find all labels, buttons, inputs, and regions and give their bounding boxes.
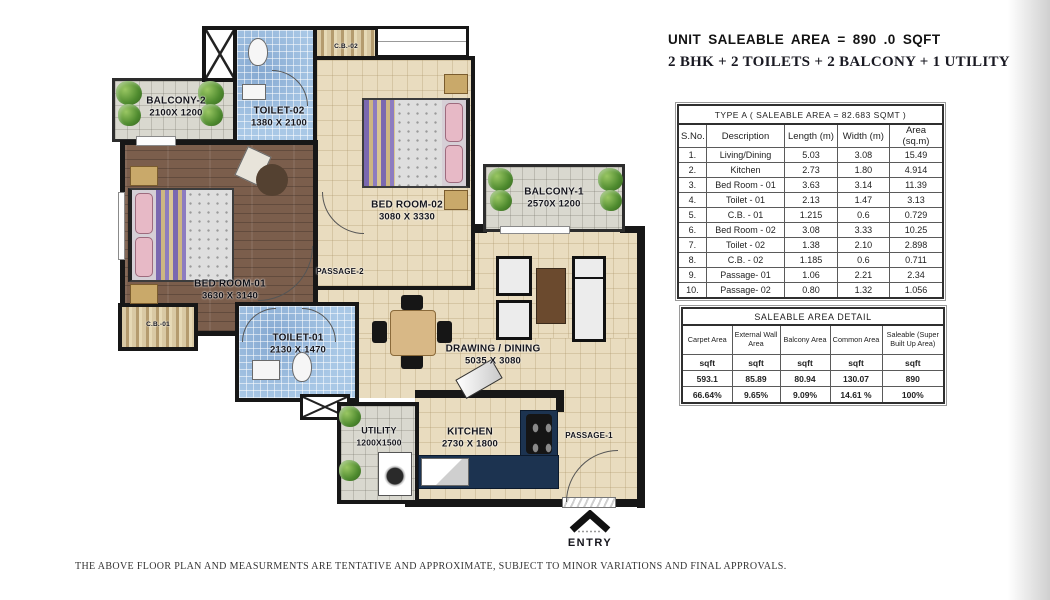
table-cell: 10. [678,283,706,299]
table-row: 66.64%9.65%9.09%14.61 %100% [682,387,944,404]
table-cell: 9.09% [780,387,830,404]
table-cell: 1.056 [890,283,943,299]
dining-table [390,310,436,356]
balcony-rail-gap [500,226,570,234]
table-cell: 2.34 [890,268,943,283]
table-cell: 80.94 [780,371,830,387]
window-line [378,41,466,42]
wall-segment [556,390,564,412]
table-cell: 3.33 [837,223,889,238]
table-cell: sqft [682,355,732,371]
table-cell: 5.03 [785,148,837,163]
table-title: TYPE A ( SALEABLE AREA = 82.683 SQMT ) [678,105,943,124]
column-header: External Wall Area [732,325,780,355]
plant-icon [118,104,141,126]
table-cell: Passage- 01 [706,268,785,283]
table-cell: 9.65% [732,387,780,404]
table-row: 4.Toilet - 012.131.473.13 [678,193,943,208]
table-cell: 66.64% [682,387,732,404]
table-cell: 2.21 [837,268,889,283]
table-cell: 4. [678,193,706,208]
table-cell: 10.25 [890,223,943,238]
room-label-drawing-dining: DRAWING / DINING5035 X 3080 [446,342,541,367]
table-cell: 2.898 [890,238,943,253]
room-label-toilet-02: TOILET-021380 X 2100 [251,104,307,129]
table-cell: 3.63 [785,178,837,193]
bed-sheet [186,190,232,280]
plant-icon [488,168,513,191]
table-cell: 8. [678,253,706,268]
washing-machine [378,452,412,496]
table-cell: 100% [882,387,944,404]
table-row: 10.Passage- 020.801.321.056 [678,283,943,299]
room-label-balcony-2: BALCONY-22100X 1200 [146,94,206,119]
armchair [496,300,532,340]
table-cell: 3.13 [890,193,943,208]
table-cell: 11.39 [890,178,943,193]
table-row: 5.C.B. - 011.2150.60.729 [678,208,943,223]
entry-arrow-icon [568,510,612,534]
x-brace-icon [206,30,234,78]
wall-segment [415,390,560,398]
room-label-balcony-1: BALCONY-12570X 1200 [524,185,584,210]
floorplan-sheet: BALCONY-22100X 1200 TOILET-021380 X 2100… [0,0,1050,600]
table-cell: 4.914 [890,163,943,178]
table-cell: 9. [678,268,706,283]
dining-chair [437,321,452,343]
room-label-passage-2: PASSAGE-2 [316,267,363,277]
room-label-kitchen: KITCHEN2730 X 1800 [442,425,498,450]
pillow [445,145,463,184]
floorplan: BALCONY-22100X 1200 TOILET-021380 X 2100… [0,0,660,600]
table-cell: 2.73 [785,163,837,178]
room-label-utility: UTILITY1200X1500 [356,426,401,449]
bed-blanket [364,100,395,186]
column-header: Description [706,124,785,148]
table-cell: 2.10 [837,238,889,253]
table-cell: Living/Dining [706,148,785,163]
table-cell: sqft [732,355,780,371]
column-header: Balcony Area [780,325,830,355]
table-cell: 3.08 [837,148,889,163]
pillow [445,103,463,142]
table-row: sqftsqftsqftsqftsqft [682,355,944,371]
column-header: S.No. [678,124,706,148]
bed [128,188,234,282]
unit-area-heading: UNIT SALEABLE AREA = 890 .0 SQFT [668,32,940,47]
table-cell: Bed Room - 02 [706,223,785,238]
room-label-cb-01: C.B.-01 [146,321,170,329]
table-cell: Kitchen [706,163,785,178]
dining-chair [401,295,423,310]
table-cell: Passage- 02 [706,283,785,299]
column-header: Area (sq.m) [890,124,943,148]
table-row: 7.Toilet - 021.382.102.898 [678,238,943,253]
table-cell: 1.185 [785,253,837,268]
table-row: 3.Bed Room - 013.633.1411.39 [678,178,943,193]
table-cell: sqft [780,355,830,371]
table-cell: 2.13 [785,193,837,208]
dining-chair [401,354,423,369]
table-cell: 5. [678,208,706,223]
table-cell: 0.711 [890,253,943,268]
saleable-area-table: SALEABLE AREA DETAIL Carpet AreaExternal… [681,307,945,404]
table-cell: 14.61 % [830,387,882,404]
table-cell: C.B. - 01 [706,208,785,223]
table-cell: 130.07 [830,371,882,387]
table-cell: 1.32 [837,283,889,299]
nightstand [130,166,158,186]
table-cell: 593.1 [682,371,732,387]
nightstand [130,284,158,304]
table-cell: 2. [678,163,706,178]
table-row: 9.Passage- 011.062.212.34 [678,268,943,283]
scan-edge-shadow [1008,0,1050,600]
bed-pillows [442,100,466,186]
type-a-area-table: TYPE A ( SALEABLE AREA = 82.683 SQMT ) S… [677,104,944,299]
room-label-cb-02: C.B.-02 [334,43,358,51]
plant-icon [339,406,361,427]
table-title: SALEABLE AREA DETAIL [682,308,944,325]
entry-label: ENTRY [568,536,612,550]
nightstand [444,74,468,94]
column-header: Saleable (Super Built Up Area) [882,325,944,355]
table-cell: 890 [882,371,944,387]
disclaimer-text: THE ABOVE FLOOR PLAN AND MEASURMENTS ARE… [75,561,787,572]
bed-blanket [156,190,186,280]
column-header: Width (m) [837,124,889,148]
table-cell: 3.08 [785,223,837,238]
table-cell: 15.49 [890,148,943,163]
room-label-toilet-01: TOILET-012130 X 1470 [270,331,326,356]
room-label-bedroom-02: BED ROOM-023080 X 3330 [371,198,443,223]
dining-chair [372,321,387,343]
table-cell: C.B. - 02 [706,253,785,268]
pillow [135,237,153,278]
table-cell: 1.06 [785,268,837,283]
plant-icon [116,81,142,105]
column-header: Carpet Area [682,325,732,355]
table-row: 2.Kitchen2.731.804.914 [678,163,943,178]
table-cell: 6. [678,223,706,238]
nightstand [444,190,468,210]
sink [242,84,266,100]
plant-icon [339,460,361,481]
sink [421,458,469,486]
stove [526,414,552,454]
table-cell: 7. [678,238,706,253]
table-row: 593.185.8980.94130.07890 [682,371,944,387]
table-cell: Bed Room - 01 [706,178,785,193]
armchair [496,256,532,296]
table-cell: 85.89 [732,371,780,387]
table-row: 8.C.B. - 021.1850.60.711 [678,253,943,268]
plant-icon [490,190,512,211]
table-cell: Toilet - 01 [706,193,785,208]
sofa [572,256,606,342]
table-cell: 0.6 [837,253,889,268]
rug [256,164,288,196]
toilet-bowl [248,38,268,66]
coffee-table [536,268,566,324]
table-cell: 3. [678,178,706,193]
table-row: 6.Bed Room - 023.083.3310.25 [678,223,943,238]
sink [252,360,280,380]
pillow [135,193,153,234]
table-row: 1.Living/Dining5.033.0815.49 [678,148,943,163]
table-cell: sqft [882,355,944,371]
table-cell: 1.38 [785,238,837,253]
column-header: Common Area [830,325,882,355]
table-cell: sqft [830,355,882,371]
table-cell: 3.14 [837,178,889,193]
room-label-bedroom-01: BED ROOM-013630 X 3140 [194,277,266,302]
table-cell: Toilet - 02 [706,238,785,253]
plant-icon [600,190,622,211]
table-cell: 1.80 [837,163,889,178]
column-header: Length (m) [785,124,837,148]
unit-config-heading: 2 BHK + 2 TOILETS + 2 BALCONY + 1 UTILIT… [668,54,1010,71]
table-cell: 1. [678,148,706,163]
table-cell: 0.80 [785,283,837,299]
table-cell: 0.729 [890,208,943,223]
bed [362,98,470,188]
table-cell: 0.6 [837,208,889,223]
window [118,192,125,260]
door-gap [136,136,176,146]
room-label-passage-1: PASSAGE-1 [565,431,612,441]
table-cell: 1.215 [785,208,837,223]
plant-icon [598,168,623,191]
bed-sheet [395,100,442,186]
table-cell: 1.47 [837,193,889,208]
bed-pillows [132,190,156,280]
window [375,26,469,58]
wall-segment [637,226,645,508]
